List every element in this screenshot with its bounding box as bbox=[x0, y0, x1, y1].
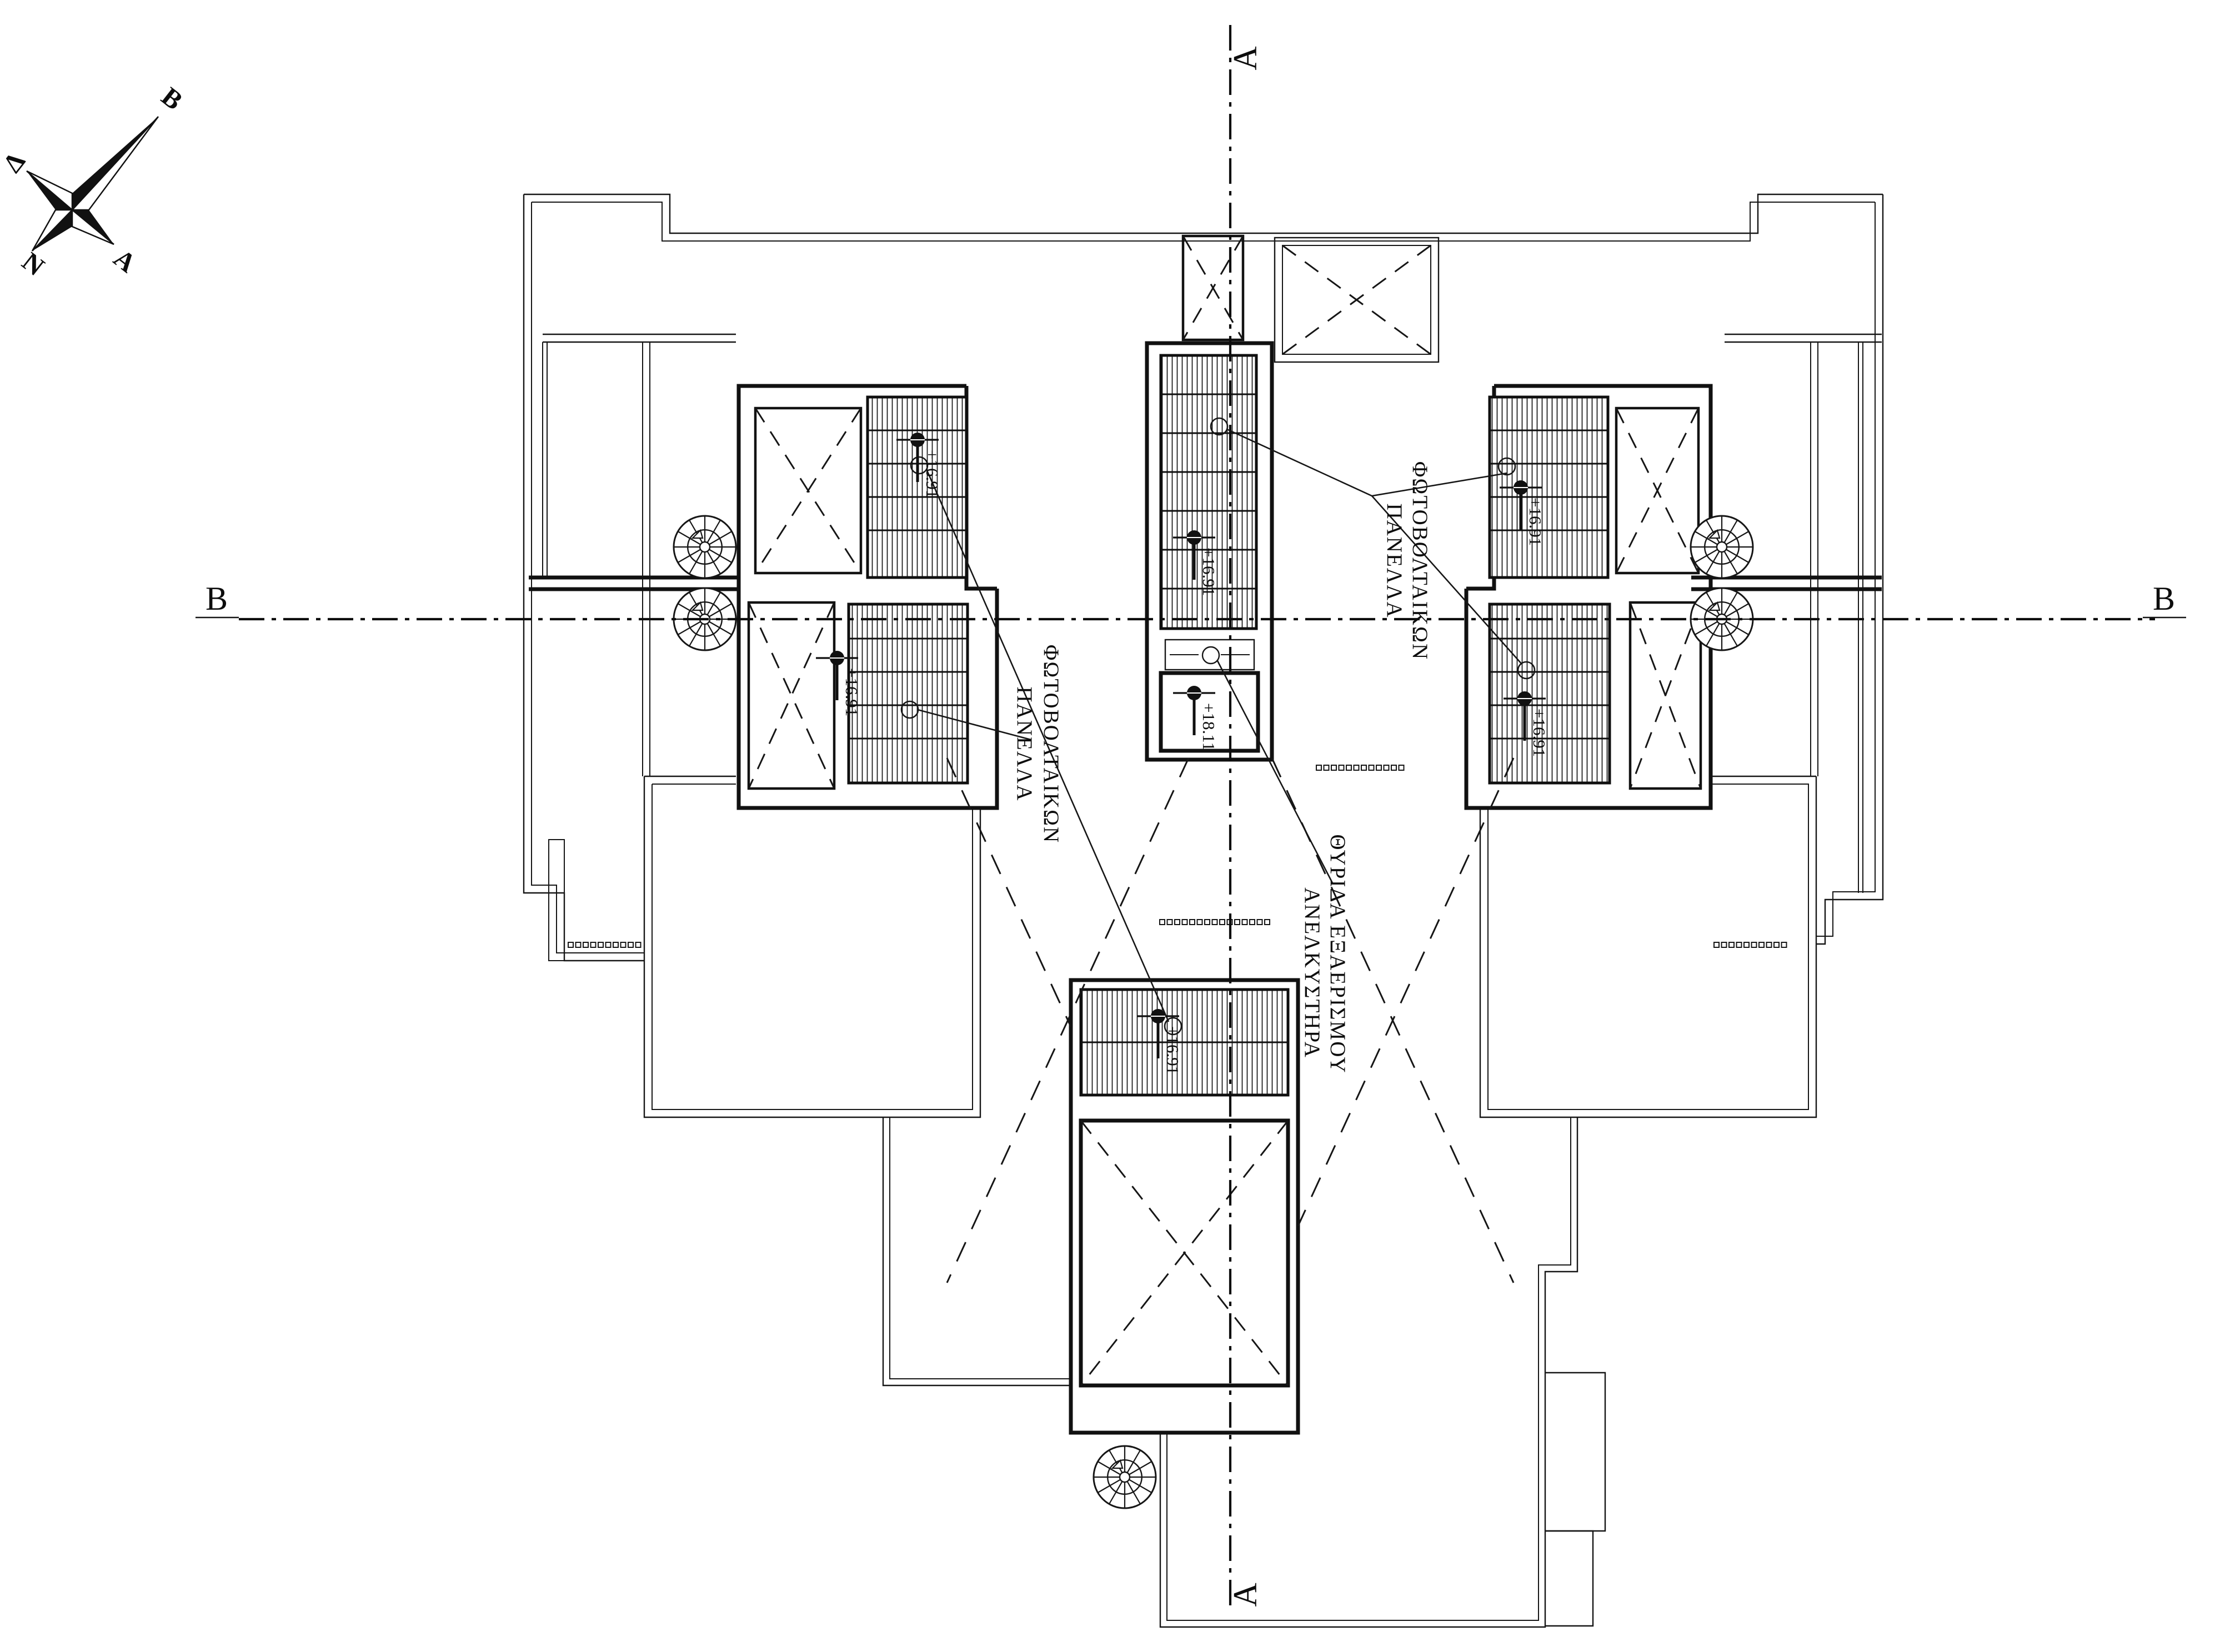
compass-west-label: Δ bbox=[0, 147, 31, 178]
svg-text:ΠΑΝΕΛΛΑ: ΠΑΝΕΛΛΑ bbox=[1382, 503, 1406, 618]
pv-panel-bottom bbox=[1081, 990, 1288, 1095]
svg-text:+16.91: +16.91 bbox=[1199, 548, 1219, 596]
section-label-A-bottom: A bbox=[1227, 1583, 1264, 1606]
svg-text:+16.91: +16.91 bbox=[1530, 709, 1549, 757]
svg-text:+16.91: +16.91 bbox=[923, 450, 942, 498]
svg-text:ΠΑΝΕΛΛΑ: ΠΑΝΕΛΛΑ bbox=[1013, 686, 1036, 801]
spot-level-machine-room: +18.11 bbox=[1173, 686, 1219, 751]
vent-strip-center bbox=[1160, 920, 1270, 925]
pv-label-left: ΦΩΤΟΒΟΛΤΑΙΚΩΝ ΠΑΝΕΛΛΑ bbox=[1013, 645, 1063, 843]
section-label-A-top: A bbox=[1227, 46, 1264, 70]
svg-text:+18.11: +18.11 bbox=[1199, 703, 1219, 751]
bottom-block bbox=[1071, 980, 1298, 1433]
spiral-stair bbox=[1691, 516, 1753, 578]
roof-plan-canvas: A A B B +16.91 +16.91 + bbox=[0, 0, 2220, 1652]
pv-panel-right-bottom bbox=[1490, 604, 1610, 783]
pv-group-right bbox=[1466, 386, 1711, 808]
svg-text:+16.91: +16.91 bbox=[842, 668, 861, 716]
svg-text:+16.91: +16.91 bbox=[1163, 1026, 1182, 1074]
spiral-stair bbox=[1094, 1446, 1156, 1508]
vent-strip-center-right bbox=[1316, 765, 1404, 770]
section-label-B-left: B bbox=[206, 580, 228, 617]
section-label-B-right: B bbox=[2153, 580, 2175, 617]
pv-label-right: ΦΩΤΟΒΟΛΤΑΙΚΩΝ ΠΑΝΕΛΛΑ bbox=[1382, 461, 1432, 660]
spiral-stair bbox=[674, 516, 736, 578]
svg-text:ΘΥΡΙΔΑ ΕΞΑΕΡΙΣΜΟΥ: ΘΥΡΙΔΑ ΕΞΑΕΡΙΣΜΟΥ bbox=[1326, 834, 1350, 1073]
vent-strip-left bbox=[568, 942, 641, 947]
svg-text:ΑΝΕΛΚΥΣΤΗΡΑ: ΑΝΕΛΚΥΣΤΗΡΑ bbox=[1300, 887, 1324, 1058]
pv-panel-left-bottom bbox=[849, 604, 968, 783]
section-line-AA: A A bbox=[1227, 25, 1264, 1610]
compass-north-label: Β bbox=[156, 82, 188, 116]
north-arrow-compass: Β Δ Ν Α bbox=[0, 82, 188, 282]
elevator-vent-hatch bbox=[1165, 640, 1254, 670]
compass-east-label: Α bbox=[108, 243, 142, 278]
pv-group-left bbox=[739, 386, 997, 808]
vent-strip-right bbox=[1714, 942, 1787, 947]
svg-text:ΦΩΤΟΒΟΛΤΑΙΚΩΝ: ΦΩΤΟΒΟΛΤΑΙΚΩΝ bbox=[1408, 461, 1432, 660]
svg-text:+16.91: +16.91 bbox=[1526, 498, 1545, 546]
pv-panel-left-top bbox=[868, 397, 966, 578]
compass-south-label: Ν bbox=[17, 247, 50, 282]
svg-text:ΦΩΤΟΒΟΛΤΑΙΚΩΝ: ΦΩΤΟΒΟΛΤΑΙΚΩΝ bbox=[1039, 645, 1063, 843]
vent-label: ΘΥΡΙΔΑ ΕΞΑΕΡΙΣΜΟΥ ΑΝΕΛΚΥΣΤΗΡΑ bbox=[1300, 834, 1350, 1073]
